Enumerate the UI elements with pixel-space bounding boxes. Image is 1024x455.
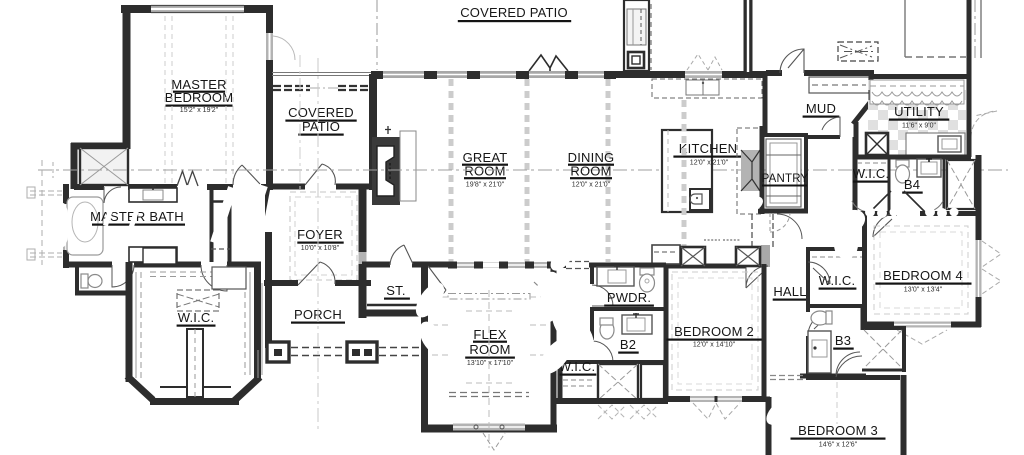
svg-text:MUD: MUD xyxy=(806,101,836,116)
svg-text:FOYER: FOYER xyxy=(297,227,343,242)
svg-text:B4: B4 xyxy=(904,177,920,192)
svg-text:BEDROOM: BEDROOM xyxy=(165,90,234,105)
svg-text:FLEX: FLEX xyxy=(473,327,506,342)
svg-text:KITCHEN: KITCHEN xyxy=(679,141,737,156)
svg-text:PATIO: PATIO xyxy=(302,119,340,134)
svg-text:PWDR.: PWDR. xyxy=(607,290,651,305)
svg-text:14'6" x 12'6": 14'6" x 12'6" xyxy=(819,442,858,449)
svg-text:B2: B2 xyxy=(620,337,636,352)
svg-text:11'6" x 9'0": 11'6" x 9'0" xyxy=(902,123,936,130)
svg-text:BEDROOM 3: BEDROOM 3 xyxy=(798,423,878,438)
svg-text:12'0" x 14'10": 12'0" x 14'10" xyxy=(693,342,736,349)
svg-text:15'2" x 19'2": 15'2" x 19'2" xyxy=(180,107,219,114)
svg-text:W.I.C.: W.I.C. xyxy=(853,166,890,181)
svg-text:UTILITY: UTILITY xyxy=(894,104,944,119)
svg-text:BEDROOM 2: BEDROOM 2 xyxy=(674,324,754,339)
svg-text:12'0" x 21'0": 12'0" x 21'0" xyxy=(572,182,611,189)
svg-text:HALL: HALL xyxy=(773,284,806,299)
svg-text:COVERED: COVERED xyxy=(288,105,354,120)
svg-text:ROOM: ROOM xyxy=(570,164,611,179)
svg-text:W.I.C.: W.I.C. xyxy=(178,310,215,325)
svg-text:ROOM: ROOM xyxy=(464,164,505,179)
svg-text:COVERED PATIO: COVERED PATIO xyxy=(460,5,568,20)
svg-text:PANTRY: PANTRY xyxy=(762,173,809,185)
svg-text:10'0" x 10'8": 10'0" x 10'8" xyxy=(301,245,340,252)
svg-text:13'0" x 13'4": 13'0" x 13'4" xyxy=(904,287,943,294)
svg-text:ST.: ST. xyxy=(386,283,405,298)
svg-text:12'0" x 21'0": 12'0" x 21'0" xyxy=(690,160,729,167)
svg-text:13'10" x 17'10": 13'10" x 17'10" xyxy=(467,360,514,367)
svg-text:B3: B3 xyxy=(835,333,851,348)
svg-text:W.I.C.: W.I.C. xyxy=(819,273,856,288)
svg-text:19'8" x 21'0": 19'8" x 21'0" xyxy=(466,182,505,189)
svg-text:ROOM: ROOM xyxy=(469,342,510,357)
svg-text:BEDROOM 4: BEDROOM 4 xyxy=(883,268,963,283)
